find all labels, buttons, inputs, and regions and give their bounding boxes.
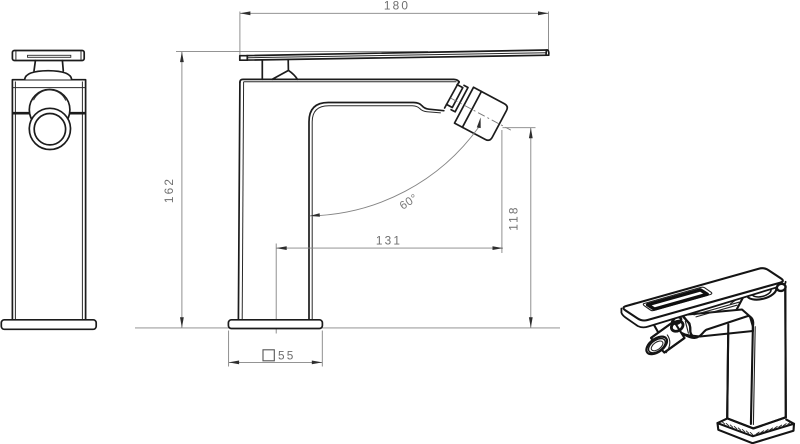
svg-text:118: 118: [507, 205, 521, 230]
svg-text:131: 131: [376, 234, 402, 248]
svg-text:162: 162: [162, 177, 176, 203]
svg-text:55: 55: [278, 349, 296, 363]
svg-text:180: 180: [384, 0, 410, 13]
